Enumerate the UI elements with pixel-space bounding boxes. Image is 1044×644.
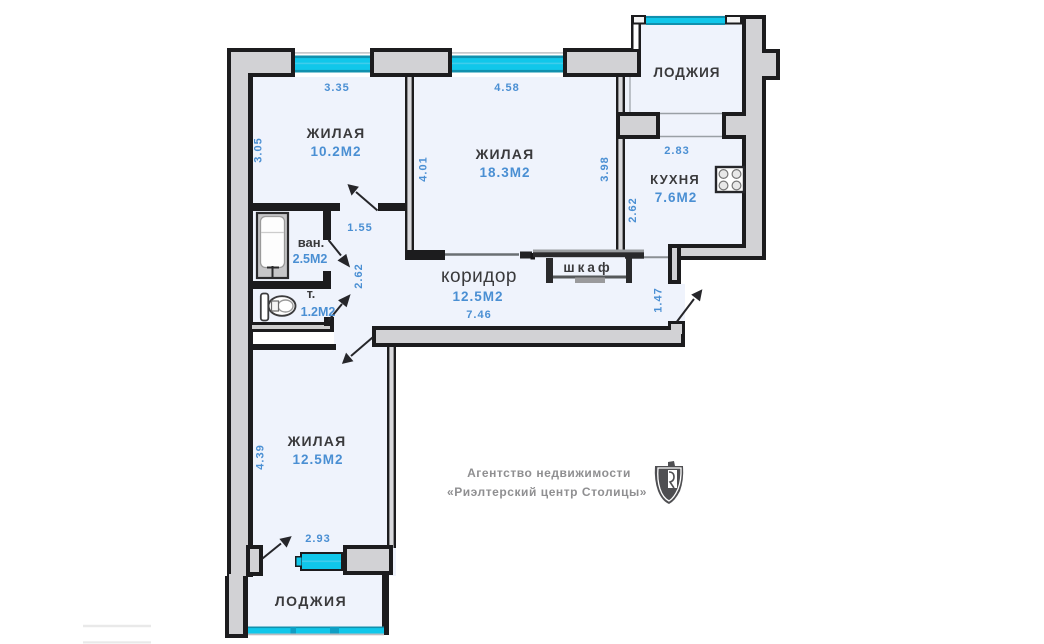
svg-text:1.2М2: 1.2М2 xyxy=(301,305,336,319)
svg-text:Агентство недвижимости: Агентство недвижимости xyxy=(467,466,631,480)
svg-text:шкаф: шкаф xyxy=(563,260,612,275)
svg-text:4.01: 4.01 xyxy=(418,156,430,181)
svg-text:3.05: 3.05 xyxy=(253,137,265,162)
svg-text:2.93: 2.93 xyxy=(305,533,330,545)
svg-text:12.5М2: 12.5М2 xyxy=(292,452,343,467)
svg-text:«Риэлтерский центр Столицы»: «Риэлтерский центр Столицы» xyxy=(447,485,647,499)
svg-text:1.47: 1.47 xyxy=(653,287,665,312)
svg-text:ЛОДЖИЯ: ЛОДЖИЯ xyxy=(275,593,347,609)
svg-text:1.55: 1.55 xyxy=(347,222,372,234)
svg-text:18.3М2: 18.3М2 xyxy=(479,165,530,180)
svg-text:ЖИЛАЯ: ЖИЛАЯ xyxy=(287,433,347,449)
svg-text:коридор: коридор xyxy=(441,266,517,287)
svg-text:т.: т. xyxy=(307,287,316,301)
svg-text:4.58: 4.58 xyxy=(494,82,519,94)
svg-text:12.5М2: 12.5М2 xyxy=(452,289,503,304)
svg-text:КУХНЯ: КУХНЯ xyxy=(650,172,700,187)
svg-text:10.2М2: 10.2М2 xyxy=(310,144,361,159)
svg-text:4.39: 4.39 xyxy=(255,444,267,469)
svg-text:7.46: 7.46 xyxy=(466,309,491,321)
svg-text:7.6М2: 7.6М2 xyxy=(655,190,698,205)
svg-text:2.83: 2.83 xyxy=(664,145,689,157)
svg-text:ЖИЛАЯ: ЖИЛАЯ xyxy=(306,125,366,141)
svg-text:2.5М2: 2.5М2 xyxy=(293,252,328,266)
svg-text:ЖИЛАЯ: ЖИЛАЯ xyxy=(475,146,535,162)
svg-text:3.98: 3.98 xyxy=(599,156,611,181)
svg-text:2.62: 2.62 xyxy=(627,197,639,222)
svg-text:ЛОДЖИЯ: ЛОДЖИЯ xyxy=(653,65,720,80)
svg-text:2.62: 2.62 xyxy=(353,263,365,288)
svg-text:ван.: ван. xyxy=(298,235,325,250)
svg-text:3.35: 3.35 xyxy=(324,82,349,94)
